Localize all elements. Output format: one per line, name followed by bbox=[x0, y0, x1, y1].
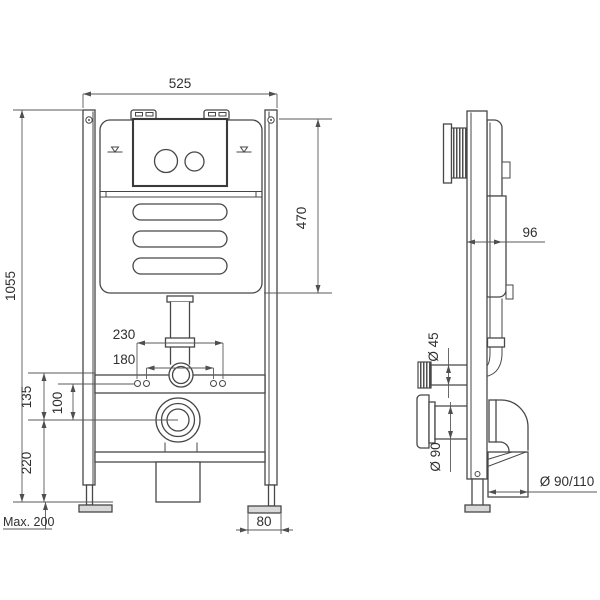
dimension-cistern-height: 470 bbox=[294, 207, 309, 230]
side-drain-flange bbox=[417, 395, 467, 448]
dimension-frame-depth: 96 bbox=[522, 225, 537, 240]
outlet-housing bbox=[156, 462, 200, 502]
dimension-waste-outlet-diameter: Ø 90/110 bbox=[540, 474, 595, 489]
dimension-foot-adjustment: Max. 200 bbox=[3, 515, 54, 529]
side-flush-pipe bbox=[418, 362, 467, 388]
water-inlet-connector bbox=[444, 124, 468, 183]
cistern-slot bbox=[133, 204, 227, 220]
drain-outlet bbox=[156, 398, 200, 452]
side-rail bbox=[465, 111, 490, 512]
flush-button-large bbox=[155, 150, 178, 173]
dimension-offset-inner: 100 bbox=[50, 392, 65, 415]
flush-plate bbox=[133, 119, 227, 186]
dimension-holes-inner: 180 bbox=[113, 352, 136, 367]
cistern-slot bbox=[133, 231, 227, 247]
flush-pipe bbox=[166, 296, 195, 387]
dimension-outlet-height: 220 bbox=[19, 452, 34, 475]
dimension-drain-flange-diameter: Ø 90 bbox=[428, 442, 443, 471]
cistern-slot bbox=[133, 258, 227, 274]
dimension-offset-upper: 135 bbox=[19, 386, 34, 409]
front-view bbox=[79, 110, 281, 513]
waste-elbow bbox=[488, 400, 528, 497]
dimension-holes-outer: 230 bbox=[113, 327, 136, 342]
side-cistern-body bbox=[487, 120, 513, 376]
foot-plate-left bbox=[79, 505, 112, 512]
flush-button-small bbox=[185, 152, 204, 171]
dimension-foot-width: 80 bbox=[256, 514, 271, 529]
foot-plate-side bbox=[465, 505, 490, 512]
lower-crossbar bbox=[95, 452, 265, 502]
dimension-overall-height: 1055 bbox=[3, 271, 18, 301]
dimension-overall-width: 525 bbox=[169, 76, 192, 91]
dimension-flush-pipe-diameter: Ø 45 bbox=[426, 332, 441, 361]
technical-drawing: 525 1055 470 230 180 135 bbox=[0, 0, 600, 600]
foot-plate-right bbox=[248, 506, 281, 513]
